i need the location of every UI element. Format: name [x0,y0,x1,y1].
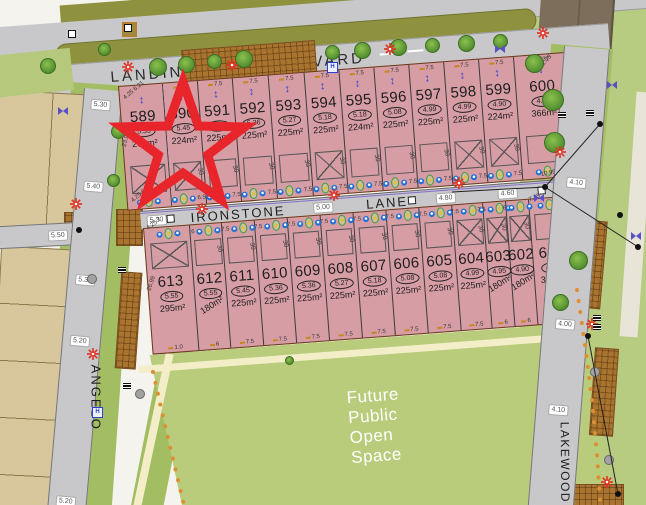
building-envelope [487,216,508,243]
survey-mark-icon [58,102,68,120]
water-meter-icon [383,180,389,186]
lot-interior: 30 [223,234,257,267]
lane-dimension: 7.5 [232,192,241,199]
dimension-text: 7.5 [410,326,419,333]
lot-frontage: 5.18 [348,109,372,122]
garden-strip: 7.5 [383,175,418,191]
garden-strip: 7.5 [206,188,241,204]
cabinet-icon [586,110,594,116]
survey-mark-icon [495,40,505,58]
building-envelope [194,238,222,266]
building-envelope [292,231,321,259]
pole-icon [597,121,603,127]
sewer-marker-icon: ↕ [389,75,395,87]
building-envelope [325,228,354,256]
water-meter-icon [260,190,266,196]
dimension-text: 7.5 [278,336,287,343]
building-envelope [259,233,288,261]
shrub-icon [239,222,248,234]
lot-number: 597 [415,86,442,105]
lane-marking [407,49,423,52]
lot-number: 605 [426,251,453,270]
hydrant-icon: H [327,62,338,73]
lot-number: 602 [508,245,535,264]
dimension-text: 6 [527,317,531,323]
shrub-icon [371,212,380,224]
building-envelope [349,147,380,177]
water-meter-icon [418,178,424,184]
lot-number: 610 [261,264,288,283]
lane-dimension: 7.5 [254,223,263,230]
tree-icon [107,174,120,187]
sewer-marker-icon: ↕ [138,94,144,106]
lot-number: 594 [310,93,337,112]
water-meter-icon [401,179,407,185]
water-meter-icon [348,183,354,189]
building-envelope [424,221,453,249]
shrub-icon [404,210,413,222]
lot-frontage: 5.36 [264,282,288,295]
service-pit-icon [604,455,614,465]
lot-area: 225m² [428,281,454,293]
lot-area: 225m² [264,294,290,306]
building-envelope [457,218,484,246]
streetlight-icon [384,42,396,60]
lot-interior: 30 [387,221,421,254]
streetlight-icon [328,188,340,206]
building-envelope [208,158,239,188]
dimension-text: 7.5 [355,70,364,77]
lane-dimension: 7.5 [339,183,348,190]
lot-frontage: 5.55 [132,125,156,138]
lot-area: 225m² [297,291,323,303]
water-meter-icon [264,223,270,229]
lot-area: 295m² [160,302,186,314]
median-fixture-icon [68,30,76,38]
lot-interior: 30 [484,120,521,169]
lot-number: 607 [360,256,387,275]
manhole-icon [166,214,175,223]
water-meter-icon [487,172,493,178]
pole-icon [542,184,548,190]
tree-icon [354,42,371,59]
dimension-text: 6 [504,319,508,325]
building-envelope [150,241,189,270]
lot-number: 589 [129,107,156,126]
water-meter-icon [189,195,195,201]
sewer-marker-icon: ↕ [213,88,219,100]
building-envelope [173,161,204,191]
cabinet-icon [558,112,566,118]
lot-interior: 30 [484,214,508,246]
sewer-marker-icon: ↕ [178,91,184,103]
building-envelope [384,145,415,175]
water-meter-icon [363,215,369,221]
lot-number: 609 [294,261,321,280]
tree-icon [285,356,294,365]
lane-dimension: 7.5 [268,189,277,196]
garden-strip: 7.5 [348,177,383,193]
dimension-text: 7.5 [495,59,504,66]
tree-icon [552,294,569,311]
lot-area: 225m² [460,279,486,291]
lane-dimension: 7.5 [287,221,296,228]
sewer-marker-icon: ↕ [319,80,325,92]
water-meter-icon [505,171,511,177]
manhole-icon [408,196,417,205]
tree-icon [569,251,588,270]
median-fixture-icon [124,24,132,32]
tree-icon [207,54,222,69]
lot-frontage: 5.36 [297,279,321,292]
lot-number: 608 [327,259,354,278]
shrub-icon [249,188,258,200]
brick-paving [116,209,143,246]
lot-interior: 30 [420,219,454,252]
water-meter-icon [231,225,237,231]
shrub-icon [164,228,173,240]
streetlight-icon [554,145,566,163]
dimension-text: 6 [216,341,220,347]
lot-frontage: 5.27 [277,114,301,127]
water-meter-icon [461,208,467,214]
dimension-text: 7.5 [344,331,353,338]
lot-interior: 30 [507,213,531,245]
pole-icon [615,491,621,497]
shrub-icon [305,217,314,229]
water-meter-icon [154,198,160,204]
streetlight-icon [601,475,613,493]
dimension-text: 7.5 [443,323,452,330]
garden-strip: 7.5 [417,172,452,188]
sewer-marker-icon: ↕ [354,78,360,90]
lot-interior: 30 [344,130,381,179]
lane-dimension: 7.5 [221,226,230,233]
lot-frontage: 5.45 [231,284,255,297]
building-envelope [510,215,531,242]
lane-dimension: 6 [503,205,507,211]
building-envelope [226,236,255,264]
pole-icon [585,333,591,339]
sewer-marker-icon: ↕ [248,86,254,98]
shrub-icon [436,207,445,219]
rear-dimension: 7.5 [371,327,386,337]
water-meter-icon [508,204,514,210]
water-meter-icon [174,230,180,236]
lot-frontage: 4.99 [452,101,476,114]
dimension-text: 7.5 [249,78,258,85]
lot-interior: 30 [238,138,276,188]
garden-strip: 7.5 [277,183,312,199]
lane-dimension: 7.5 [418,211,427,218]
building-envelope [454,140,485,170]
dimension-text: 7.5 [179,83,188,90]
rear-dimension: 6 [498,318,508,328]
sewer-marker-icon: ↕ [494,67,500,79]
water-meter-icon [471,174,477,180]
sewer-marker-icon: ↕ [459,70,465,82]
building-envelope [489,137,520,167]
road-width-label: 4.10 [566,177,586,190]
streetlight-icon [196,202,208,220]
streetlight-icon [122,60,134,78]
water-meter-icon [297,220,303,226]
lot-interior: 30 [203,141,240,190]
building-envelope [243,156,274,186]
dimension-text: 7.5 [425,65,434,72]
streetlight-icon [453,176,465,194]
water-meter-icon [436,176,442,182]
lot-interior: 30 [453,216,485,249]
water-meter-icon [396,213,402,219]
lot-frontage: 5.08 [383,106,407,119]
road-width-label: 5.30 [90,99,111,112]
dimension-text: 1.0 [174,344,183,351]
lot-number: 611 [229,266,255,285]
lot-frontage: 4.99 [460,267,484,280]
water-meter-icon [171,196,177,202]
building-envelope [391,223,420,251]
shrub-icon [391,177,400,189]
lot-area: 225m² [362,286,388,298]
tree-icon [178,56,195,73]
lot-number: 606 [393,254,420,273]
garden-strip: 7.5 [241,185,276,201]
survey-mark-icon [534,189,544,207]
rear-dimension: 7.5 [437,322,452,332]
road-width-label: 5.20 [69,335,90,348]
shrub-icon [179,193,188,205]
road-width-label: 5.40 [83,180,104,193]
water-meter-icon [313,186,319,192]
lot-frontage: 5.27 [330,277,354,290]
lane-dimension: 7.5 [477,206,486,213]
lot-interior: 30 [256,231,290,264]
road-width-label: 4.10 [548,404,568,417]
shrub-icon [204,225,213,237]
water-meter-icon [214,227,220,233]
lot-number: 590 [169,104,196,123]
pole-icon [76,227,82,233]
lot-number: 613 [157,272,184,291]
dimension-text: 7.5 [285,75,294,82]
lot-number: 596 [380,88,407,107]
streetlight-icon [537,26,549,44]
shrub-icon [468,205,477,217]
streetlight-icon [87,347,99,365]
tree-icon [98,43,111,56]
water-meter-icon [196,228,202,234]
water-meter-icon [278,188,284,194]
tree-icon [149,58,167,76]
road-width-label: 5.50 [48,230,68,242]
shrub-icon [495,169,504,181]
lot-frontage: 5.36 [242,117,266,130]
dimension-text: 7.5 [377,328,386,335]
sewer-marker-icon: ↕ [424,72,430,84]
shrub-icon [516,201,525,213]
lot-interior: 30 [449,122,486,171]
tree-icon [425,38,440,53]
shrub-icon [425,174,434,186]
open-space-line: Space [351,444,404,468]
lot-interior: 30 [273,136,311,186]
lot-frontage: 5.18 [362,274,386,287]
dimension-text: 7.5 [475,321,484,328]
cabinet-icon [118,267,126,273]
tree-icon [458,35,475,52]
lot-area: 225m² [330,289,356,301]
dimension-text: 7.5 [246,338,255,345]
water-meter-icon [296,187,302,193]
water-meter-icon [224,192,230,198]
lot-interior: 30 [191,236,224,269]
lot-interior: 30 [309,133,346,182]
building-envelope [358,226,387,254]
tree-icon [40,58,56,74]
rear-dimension: 7.5 [272,334,287,344]
cabinet-icon [593,315,601,321]
lane-dimension: 7.5 [444,175,453,182]
lot-frontage: 5.18 [313,112,337,125]
lot-frontage: 5.45 [206,120,230,133]
service-pit-icon [590,367,600,377]
lane-dimension: 7.5 [450,209,459,216]
dimension-text: 7.5 [320,72,329,79]
lot-interior [145,238,192,272]
sewer-marker-icon: ↕ [284,83,290,95]
lane-dimension: 6 [191,229,195,235]
tree-icon [525,54,544,73]
survey-mark-icon [607,76,617,94]
survey-mark-icon [631,227,641,245]
building-envelope [314,150,345,180]
tree-icon [542,89,564,111]
lot-number: 599 [485,80,512,99]
lot-number: 591 [204,102,231,121]
lot-interior: 30 [322,226,356,259]
rear-dimension: 7.5 [305,332,320,342]
lot-interior: 30 [354,224,388,257]
lane-dimension: 7.5 [353,216,362,223]
lot-number: 592 [239,99,266,118]
cabinet-icon [123,383,131,389]
shrub-icon [214,190,223,202]
street-name-angelo: ANGELO [89,365,104,431]
pole-icon [635,244,641,250]
lot-number: 612 [196,269,223,288]
dimension-text: 7.5 [460,62,469,69]
streetlight-icon [226,58,238,76]
lot-interior: 30 [379,128,416,177]
lane-dimension: 7.5 [385,213,394,220]
lot-number: 595 [345,91,372,110]
dimension-text: 7.5 [311,333,320,340]
building-envelope [419,142,450,172]
shrub-icon [144,196,153,208]
rear-dimension: 7.5 [338,329,353,339]
lane-dimension: 7.5 [409,178,418,185]
water-meter-icon [330,218,336,224]
road-width-label: 5.20 [55,495,76,505]
lane-dimension: 7.5 [304,186,313,193]
dimension-text: 7.5 [390,67,399,74]
lot-frontage: 5.45 [171,122,195,135]
lane-dimension: 7.5 [513,170,522,177]
lot-area: 225m² [231,296,257,308]
tree-icon [111,124,126,139]
dimension-text: 7.5 [214,81,223,88]
open-space-line: Public [348,404,401,428]
water-meter-icon [429,210,435,216]
lot-number: 593 [275,96,302,115]
water-meter-icon [156,231,162,237]
cabinet-icon [593,324,601,330]
water-meter-icon [206,194,212,200]
lot-interior: 30 [168,144,205,193]
lot-number: 604 [458,249,485,268]
street-name-lakewood: LAKEWOOD [558,422,573,503]
water-meter-icon [488,206,494,212]
shrub-icon [285,185,294,197]
garden-strip: 7.5 [487,167,522,183]
rear-dimension: 7.5 [469,319,484,329]
service-pit-icon [87,274,97,284]
lot-frontage: 5.55 [160,290,184,303]
lane-dimension: 7.5 [320,218,329,225]
road-width-label: 4.60 [497,187,517,199]
lot-interior: 30 [414,125,451,174]
water-meter-icon [242,191,248,197]
water-meter-icon [366,182,372,188]
rear-dimension: 7.5 [239,337,254,347]
service-pit-icon [135,389,145,399]
subdivision-map: LANDINGS BOULEVARD Future Public Open Sp… [0,0,646,505]
lot-interior: 30 [289,229,323,262]
lot-frontage: 4.99 [418,104,442,117]
pole-icon [617,212,623,218]
shrub-icon [338,215,347,227]
lot-frontage: 5.08 [428,269,452,282]
rear-dimension: 6 [210,340,220,350]
road-width-label: 4.00 [555,318,575,331]
hydrant-icon: H [92,407,103,418]
lot-frontage: 4.90 [487,98,511,111]
lane-dimension: 6.5 [197,194,206,201]
building-envelope [279,153,310,183]
rear-dimension: 7.5 [404,324,419,334]
shrub-icon [272,220,281,232]
streetlight-icon [70,197,82,215]
rear-dimension: 6 [521,316,531,326]
lot-frontage: 5.08 [395,272,419,285]
verge-northwest-corner [0,48,74,98]
tree-icon [325,45,340,60]
lot-area: 225m² [395,284,421,296]
lane-dimension: 7.5 [374,181,383,188]
open-space-label: Future Public Open Space [346,384,404,468]
rear-dimension: 1.0 [168,342,183,352]
lane-dimension: 7.5 [478,173,487,180]
shrub-icon [356,180,365,192]
lot-number: 598 [450,83,477,102]
